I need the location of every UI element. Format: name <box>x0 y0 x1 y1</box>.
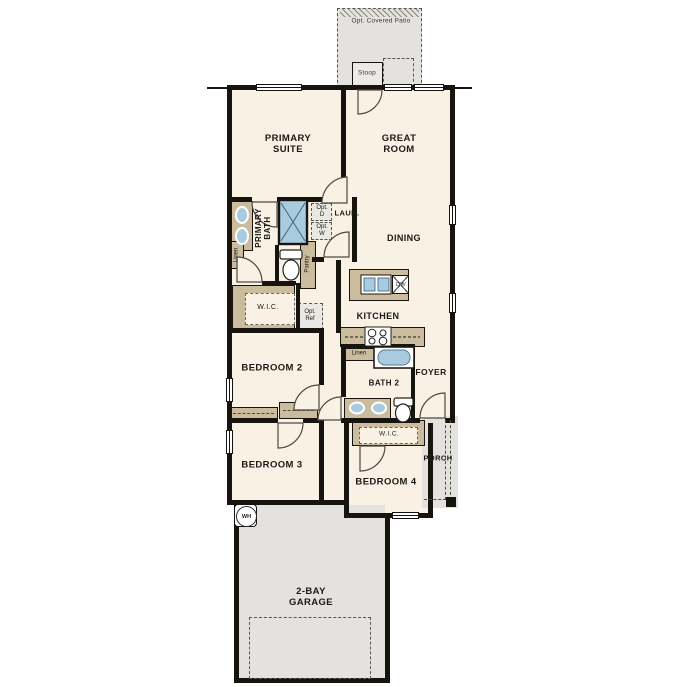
door-bath2 <box>318 397 341 420</box>
stoop-label: Stoop <box>358 69 376 76</box>
door-laundry <box>324 232 349 257</box>
opt-washer-label: Opt. W <box>316 224 327 238</box>
island-sink <box>361 275 391 294</box>
door-front-entry <box>420 393 445 418</box>
toilet <box>394 398 413 422</box>
primary-suite-label: PRIMARY SUITE <box>265 134 311 156</box>
water-heater: WH <box>236 506 257 527</box>
wic-bed4-label: W.I.C. <box>379 430 399 437</box>
primary-linen-label: Linen <box>234 248 241 263</box>
sink <box>350 403 364 414</box>
door-primary-suite <box>322 177 347 203</box>
door-stoop <box>358 90 382 114</box>
foyer-label: FOYER <box>415 368 446 378</box>
door-wic-primary <box>237 257 262 282</box>
door-bedroom2 <box>294 385 319 410</box>
bedroom3-label: BEDROOM 3 <box>241 461 302 472</box>
laundry-label: LAUN. <box>335 210 360 219</box>
fixtures-overlay <box>0 0 687 687</box>
hall-linen-label: Linen <box>352 351 367 358</box>
toilet <box>280 250 302 280</box>
porch-label: PORCH <box>423 455 452 464</box>
bath2-label: BATH 2 <box>369 378 400 387</box>
great-room-label: GREAT ROOM <box>382 134 417 156</box>
dining-label: DINING <box>387 233 421 243</box>
bedroom2-label: BEDROOM 2 <box>241 364 302 375</box>
dishwasher-label: DW <box>396 282 406 288</box>
opt-dryer-label: Opt. D <box>316 205 327 219</box>
bedroom4-label: BEDROOM 4 <box>355 478 416 489</box>
patio-label: Opt. Covered Patio <box>352 17 411 24</box>
bathtub <box>374 347 414 368</box>
wic-primary-label: W.I.C. <box>257 304 278 312</box>
opt-ref-label: Opt. Ref <box>304 309 315 323</box>
floor-plan: DW WH Opt. Covered Patio Stoop PRIMARY S… <box>0 0 687 687</box>
door-bedroom3 <box>278 423 303 448</box>
pantry-label: Pantry <box>305 255 312 272</box>
primary-shower <box>279 200 307 244</box>
stove <box>365 327 391 346</box>
door-bedroom4 <box>360 446 385 471</box>
sink <box>372 403 386 414</box>
kitchen-label: KITCHEN <box>357 311 400 321</box>
primary-bath-label: PRIMARY BATH <box>254 208 272 247</box>
garage-label: 2-BAY GARAGE <box>289 587 333 609</box>
sink <box>236 228 248 244</box>
sink <box>236 207 248 223</box>
